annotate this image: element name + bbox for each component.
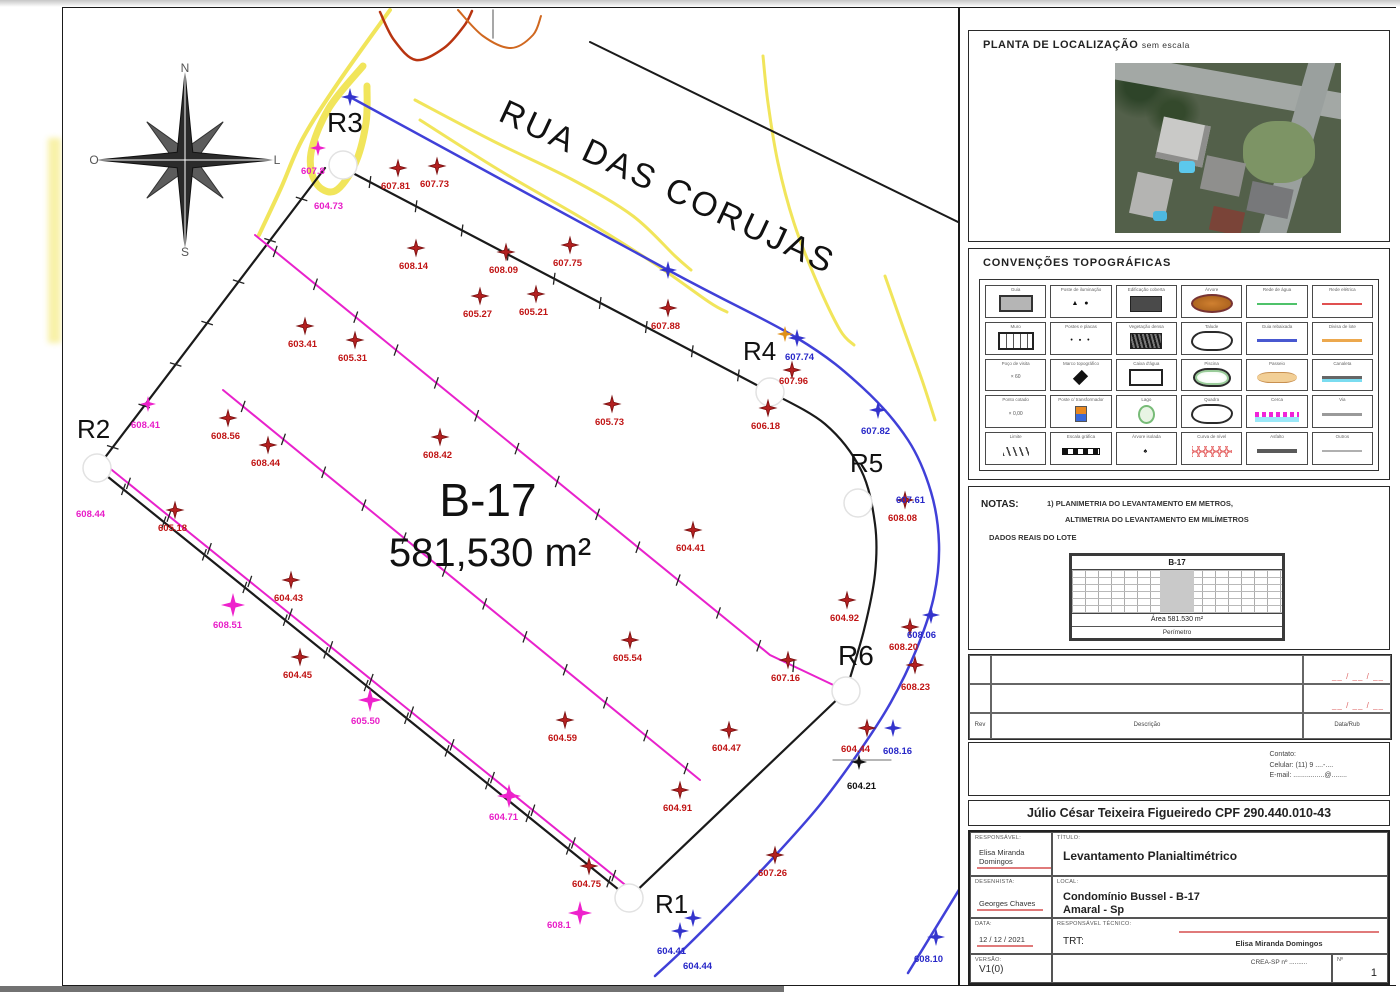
legend-symbol-bars-icon bbox=[1062, 440, 1100, 462]
elevation-label: 605.73 bbox=[595, 417, 624, 428]
field-label: DESENHISTA: bbox=[975, 879, 1015, 885]
elevation-label: 604.92 bbox=[830, 613, 859, 624]
map-text: N bbox=[181, 61, 190, 75]
lot-table-body bbox=[1072, 570, 1282, 614]
legend-symbol-linedark-icon bbox=[1257, 440, 1297, 462]
map-text: R4 bbox=[743, 336, 776, 366]
scan-artifact-yellow bbox=[48, 138, 61, 343]
field-value: V1(0) bbox=[977, 964, 1011, 976]
revision-col-data: Data/Rub bbox=[1303, 713, 1391, 739]
elevation-label: 608.41 bbox=[131, 420, 161, 431]
field-label: DATA: bbox=[975, 921, 992, 927]
sheet-number-cell: Nº 1 bbox=[1332, 954, 1388, 983]
legend-symbol-linegray-icon bbox=[1322, 403, 1362, 425]
revision-cell bbox=[969, 655, 991, 684]
legend-cell: Marco topográfico bbox=[1050, 359, 1111, 392]
vertex-marker bbox=[844, 489, 872, 517]
elevation-label: 608.06 bbox=[907, 630, 936, 641]
legend-symbol-recthatch-icon bbox=[998, 330, 1034, 352]
legend-cell: Árvore isolada♠ bbox=[1116, 432, 1177, 465]
elevation-label: 607.61 bbox=[896, 495, 926, 506]
map-text: O bbox=[89, 153, 98, 167]
notes-label: NOTAS: bbox=[981, 499, 1019, 510]
elevation-label: 605.50 bbox=[351, 716, 380, 727]
field-label: RESPONSÁVEL: bbox=[975, 835, 1021, 841]
legend-cell: Via bbox=[1312, 395, 1373, 428]
field-data: DATA: 12 / 12 / 2021 bbox=[970, 918, 1052, 954]
legend-symbol-glyph-icon: ▲ ● bbox=[1071, 293, 1090, 315]
photo-pool bbox=[1179, 161, 1195, 173]
revision-cell bbox=[991, 655, 1303, 684]
elevation-label: 607.16 bbox=[771, 673, 800, 684]
approval-value: TRT: bbox=[1063, 936, 1084, 947]
location-subtitle-text: sem escala bbox=[1142, 40, 1190, 50]
elevation-label: 605.27 bbox=[463, 309, 492, 320]
revision-cell bbox=[991, 684, 1303, 713]
lot-data-table: B-17 Área 581.530 m² Perímetro bbox=[1069, 553, 1285, 641]
elevation-label: 608.23 bbox=[901, 682, 930, 693]
legend-cell: Rede elétrica bbox=[1312, 285, 1373, 318]
elevation-label: 604.41 bbox=[657, 946, 687, 957]
legend-symbol-dotsmag-icon bbox=[1255, 403, 1299, 425]
legend-symbol-blobgreen-icon bbox=[1193, 367, 1231, 389]
contact-line3: E-mail: ................@........ bbox=[1269, 771, 1347, 782]
vertex-marker bbox=[832, 677, 860, 705]
legend-symbol-rectoutline-icon bbox=[1129, 367, 1163, 389]
legend-symbol-linegreen-icon bbox=[1257, 293, 1297, 315]
legend-cell: Poste de iluminação▲ ● bbox=[1050, 285, 1111, 318]
map-svg: 607.81607.73607.75608.14608.09605.27605.… bbox=[63, 8, 958, 985]
elevation-label: 604.44 bbox=[683, 961, 713, 972]
contact-box: Contato: Celular: (11) 9 ....-.... E-mai… bbox=[968, 742, 1390, 796]
legend-symbol-marks-icon bbox=[1075, 403, 1087, 425]
sheet-number-value: 1 bbox=[1371, 967, 1377, 979]
signature-name: Elisa Miranda Domingos bbox=[1235, 939, 1322, 948]
photo-house bbox=[1200, 155, 1246, 197]
elevation-label: 604.75 bbox=[572, 879, 602, 890]
approval-label: RESPONSÁVEL TÉCNICO: bbox=[1057, 921, 1131, 927]
legend-symbol-linered-icon bbox=[1322, 293, 1362, 315]
field-responsavel: RESPONSÁVEL: Elisa Miranda Domingos bbox=[970, 832, 1052, 876]
legend-cell: Escala gráfica bbox=[1050, 432, 1111, 465]
elevation-label: 607.73 bbox=[420, 179, 449, 190]
elevation-label: 608.08 bbox=[888, 513, 917, 524]
right-panel: PLANTA DE LOCALIZAÇÃO sem escala CONVENÇ… bbox=[958, 8, 1396, 985]
legend-symbol-text-icon: × 0,00 bbox=[1009, 403, 1023, 425]
legend-cell: Divisa de lote bbox=[1312, 322, 1373, 355]
elevation-label: 607.81 bbox=[381, 181, 411, 192]
elevation-label: 605.18 bbox=[158, 523, 187, 534]
notes-line2: ALTIMETRIA DO LEVANTAMENTO EM MILÍMETROS bbox=[1065, 515, 1249, 524]
legend-symbol-text-icon: × 60 bbox=[1011, 367, 1021, 389]
legend-symbol-ovalgreen-icon bbox=[1138, 403, 1155, 425]
legend-box: CONVENÇÕES TOPOGRÁFICAS GuiaPoste de ilu… bbox=[968, 248, 1390, 480]
legend-cell: Canaleta bbox=[1312, 359, 1373, 392]
legend-symbol-rectgray-icon bbox=[999, 293, 1033, 315]
revision-date-placeholder: __ / __ / __ bbox=[1332, 701, 1384, 710]
elevation-label: 604.71 bbox=[489, 812, 519, 823]
elevation-label: 604.41 bbox=[676, 543, 706, 554]
vertex-marker bbox=[329, 151, 357, 179]
elevation-label: 607.82 bbox=[861, 426, 890, 437]
legend-cell: Curva de nível bbox=[1181, 432, 1242, 465]
legend-cell: Poço de visita× 60 bbox=[985, 359, 1046, 392]
contact-line1: Contato: bbox=[1269, 750, 1347, 761]
legend-symbol-tree-icon bbox=[1191, 293, 1233, 315]
elevation-label: 608.20 bbox=[889, 642, 918, 653]
legend-cell: Piscina bbox=[1181, 359, 1242, 392]
photo-house bbox=[1209, 206, 1245, 233]
legend-cell: Talude bbox=[1181, 322, 1242, 355]
legend-symbol-lineblue-icon bbox=[1257, 330, 1297, 352]
lot-table-area: Área 581.530 m² bbox=[1072, 614, 1282, 627]
scan-artifact-top bbox=[0, 0, 1400, 7]
elevation-label: 604.21 bbox=[847, 781, 877, 792]
legend-cell: Outros bbox=[1312, 432, 1373, 465]
contact-line2: Celular: (11) 9 ....-.... bbox=[1269, 761, 1347, 772]
revision-cell: __ / __ / __ bbox=[1303, 684, 1391, 713]
notes-box: NOTAS: 1) PLANIMETRIA DO LEVANTAMENTO EM… bbox=[968, 486, 1390, 650]
sheet-number-label: Nº bbox=[1337, 957, 1343, 963]
legend-cell: Quadra bbox=[1181, 395, 1242, 428]
elevation-label: 604.44 bbox=[841, 744, 871, 755]
title-label: TÍTULO: bbox=[1057, 835, 1080, 841]
legend-cell: Limite bbox=[985, 432, 1046, 465]
map-text: 581,530 m² bbox=[389, 531, 591, 575]
map-text: R2 bbox=[77, 414, 110, 444]
lot-table-perimeter: Perímetro bbox=[1072, 627, 1282, 638]
legend-cell: Guia bbox=[985, 285, 1046, 318]
legend-symbol-bandorange-icon bbox=[1257, 367, 1297, 389]
legend-cell: Muro bbox=[985, 322, 1046, 355]
lot-table-title: B-17 bbox=[1072, 556, 1282, 570]
map-text: B-17 bbox=[439, 474, 536, 526]
field-versao: VERSÃO: V1(0) bbox=[970, 954, 1052, 983]
legend-symbol-vegdark-icon bbox=[1130, 330, 1162, 352]
elevation-label: 608.14 bbox=[399, 261, 429, 272]
revision-cell bbox=[969, 684, 991, 713]
elevation-label: 608.51 bbox=[213, 620, 243, 631]
field-value: Georges Chaves bbox=[977, 899, 1043, 911]
elevation-label: 605.54 bbox=[613, 653, 643, 664]
revision-col-desc: Descrição bbox=[991, 713, 1303, 739]
location-plan-box: PLANTA DE LOCALIZAÇÃO sem escala bbox=[968, 30, 1390, 242]
legend-cell: Edificação coberta bbox=[1116, 285, 1177, 318]
contact-block: Contato: Celular: (11) 9 ....-.... E-mai… bbox=[1269, 750, 1347, 782]
titleblock-approval-cell: RESPONSÁVEL TÉCNICO: TRT: Elisa Miranda … bbox=[1052, 918, 1388, 954]
field-value: Elisa Miranda Domingos bbox=[977, 848, 1051, 869]
revision-col-rev: Rev bbox=[969, 713, 991, 739]
client-bar: Júlio César Teixeira Figueiredo CPF 290.… bbox=[968, 800, 1390, 826]
legend-cell: Guia rebaixada bbox=[1246, 322, 1307, 355]
elevation-label: 604.45 bbox=[283, 670, 313, 681]
local-value2: Amaral - Sp bbox=[1063, 904, 1124, 916]
elevation-label: 606.18 bbox=[751, 421, 780, 432]
elevation-label: 607.75 bbox=[553, 258, 583, 269]
photo-pool bbox=[1153, 211, 1167, 221]
elevation-label: 604.73 bbox=[314, 201, 343, 212]
elevation-label: 608.1 bbox=[547, 920, 571, 931]
legend-grid: GuiaPoste de iluminação▲ ●Edificação cob… bbox=[979, 279, 1379, 471]
legend-cell: Asfalto bbox=[1246, 432, 1307, 465]
legend-cell: Árvore bbox=[1181, 285, 1242, 318]
map-text: L bbox=[274, 153, 281, 167]
map-text: R6 bbox=[838, 640, 874, 671]
location-plan-title: PLANTA DE LOCALIZAÇÃO sem escala bbox=[983, 39, 1190, 51]
elevation-label: 608.09 bbox=[489, 265, 518, 276]
field-desenhista: DESENHISTA: Georges Chaves bbox=[970, 876, 1052, 918]
legend-cell: Ponto cotado× 0,00 bbox=[985, 395, 1046, 428]
legend-cell: Passeio bbox=[1246, 359, 1307, 392]
location-title-text: PLANTA DE LOCALIZAÇÃO bbox=[983, 39, 1138, 51]
client-name: Júlio César Teixeira Figueiredo CPF 290.… bbox=[1027, 806, 1331, 820]
legend-symbol-diamond-icon bbox=[1076, 367, 1085, 389]
elevation-label: 608.44 bbox=[76, 509, 106, 520]
elevation-label: 604.47 bbox=[712, 743, 741, 754]
legend-symbol-linethin-icon bbox=[1322, 440, 1362, 462]
legend-symbol-rectdark-icon bbox=[1130, 293, 1162, 315]
legend-cell: Cerca bbox=[1246, 395, 1307, 428]
map-text: R1 bbox=[655, 889, 688, 919]
legend-symbol-blob-icon bbox=[1191, 403, 1233, 425]
elevation-label: 607.8 bbox=[301, 166, 325, 177]
map-text: R5 bbox=[850, 448, 883, 478]
photo-house bbox=[1155, 116, 1211, 167]
legend-symbol-lineorange-icon bbox=[1322, 330, 1362, 352]
elevation-label: 607.88 bbox=[651, 321, 680, 332]
local-value1: Condomínio Bussel - B-17 bbox=[1063, 891, 1200, 903]
legend-cell: Poste c/ transformador bbox=[1050, 395, 1111, 428]
map-text: S bbox=[181, 245, 189, 259]
legend-cell: Rede de água bbox=[1246, 285, 1307, 318]
elevation-label: 608.44 bbox=[251, 458, 281, 469]
legend-symbol-glyph-icon: ♠ bbox=[1143, 440, 1149, 462]
elevation-label: 605.31 bbox=[338, 353, 368, 364]
elevation-label: 603.41 bbox=[288, 339, 318, 350]
photo-grass bbox=[1243, 121, 1315, 183]
elevation-label: 604.43 bbox=[274, 593, 303, 604]
legend-cell: Vegetação densa bbox=[1116, 322, 1177, 355]
elevation-label: 608.16 bbox=[883, 746, 912, 757]
legend-symbol-blob-icon bbox=[1191, 330, 1233, 352]
map-text: R3 bbox=[327, 107, 363, 138]
scan-artifact-bottom bbox=[0, 986, 784, 992]
vertex-marker bbox=[615, 884, 643, 912]
drawing-title: Levantamento Planialtimétrico bbox=[1063, 849, 1237, 863]
legend-cell: Caixa d'água bbox=[1116, 359, 1177, 392]
legend-symbol-slashes-icon bbox=[1003, 440, 1029, 462]
legend-cell: Lago bbox=[1116, 395, 1177, 428]
field-value: 12 / 12 / 2021 bbox=[977, 935, 1033, 947]
elevation-label: 607.96 bbox=[779, 376, 808, 387]
elevation-label: 608.56 bbox=[211, 431, 240, 442]
field-label: VERSÃO: bbox=[975, 957, 1002, 963]
elevation-label: 608.10 bbox=[914, 954, 943, 965]
titleblock-title-cell: TÍTULO: Levantamento Planialtimétrico bbox=[1052, 832, 1388, 876]
elevation-label: 605.21 bbox=[519, 307, 549, 318]
titleblock-empty-cell bbox=[1052, 954, 1332, 983]
legend-cell: Postes e placas• ▪ • bbox=[1050, 322, 1111, 355]
elevation-label: 608.42 bbox=[423, 450, 452, 461]
notes-line1: 1) PLANIMETRIA DO LEVANTAMENTO EM METROS… bbox=[1047, 499, 1233, 508]
vertex-marker bbox=[83, 454, 111, 482]
elevation-label: 607.74 bbox=[785, 352, 815, 363]
revision-cell: __ / __ / __ bbox=[1303, 655, 1391, 684]
revision-table: __ / __ / __ __ / __ / __ Rev Descrição … bbox=[968, 654, 1392, 740]
survey-sheet: 607.81607.73607.75608.14608.09605.27605.… bbox=[0, 0, 1400, 992]
notes-line3: DADOS REAIS DO LOTE bbox=[989, 533, 1077, 542]
titleblock-local-cell: LOCAL: Condomínio Bussel - B-17 Amaral -… bbox=[1052, 876, 1388, 918]
legend-symbol-wavyred-icon bbox=[1192, 440, 1232, 462]
local-label: LOCAL: bbox=[1057, 879, 1078, 885]
elevation-label: 604.91 bbox=[663, 803, 693, 814]
elevation-label: 604.59 bbox=[548, 733, 577, 744]
satellite-photo bbox=[1115, 63, 1341, 233]
legend-title: CONVENÇÕES TOPOGRÁFICAS bbox=[983, 257, 1171, 269]
elevation-label: 607.26 bbox=[758, 868, 787, 879]
revision-date-placeholder: __ / __ / __ bbox=[1332, 672, 1384, 681]
legend-symbol-glyph-icon: • ▪ • bbox=[1070, 330, 1091, 352]
legend-symbol-linecyan-icon bbox=[1322, 367, 1362, 389]
title-block: RESPONSÁVEL: Elisa Miranda Domingos DESE… bbox=[968, 830, 1390, 985]
